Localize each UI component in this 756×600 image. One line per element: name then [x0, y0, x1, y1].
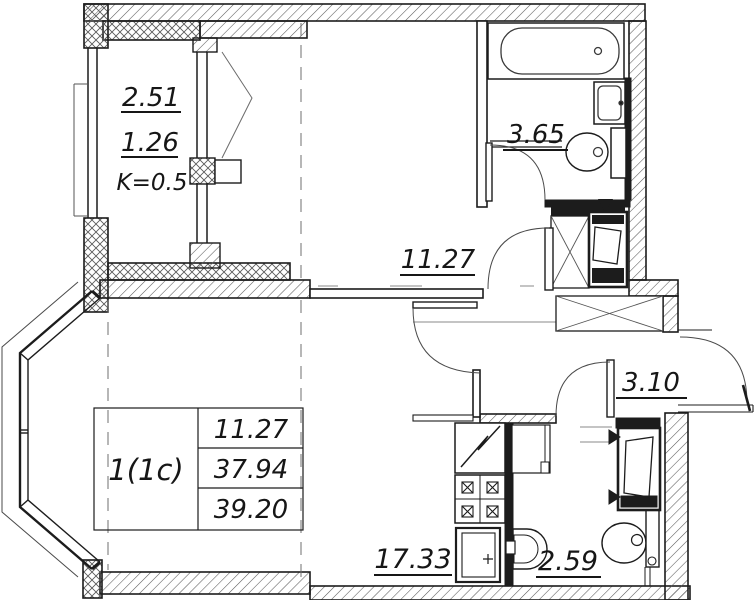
- bay-window: [2, 282, 100, 577]
- balcony-reduced-label: 1.26: [121, 128, 179, 158]
- wall-right-upper: [629, 21, 646, 280]
- door-entry-arc: [680, 337, 747, 403]
- wall-kitchen-corner: [473, 370, 480, 417]
- window-opening-indicator: [222, 52, 252, 158]
- toilet-tank: [611, 128, 626, 178]
- wall-kitchen-top: [480, 414, 556, 423]
- floor-plan-page: 2.51 1.26 K=0.5 11.27 3.65 3.10 17.33 2.…: [0, 0, 756, 600]
- wall-top: [84, 4, 645, 21]
- wall-bay-corner-block: [83, 560, 102, 598]
- wall-hall-top: [310, 289, 483, 298]
- wall-bathroom-bottom: [545, 200, 630, 207]
- door-living-arc: [413, 308, 480, 373]
- door-room-leaf: [545, 228, 553, 290]
- bay-window-outer: [20, 291, 92, 569]
- wall-top-inner-band: [200, 21, 307, 38]
- door-wc-arc: [556, 362, 610, 416]
- wall-room-divider: [100, 280, 310, 298]
- service-shaft: [551, 199, 627, 288]
- table-area: 37.94: [214, 455, 288, 485]
- wall-right-step-v: [663, 296, 678, 332]
- entry-duct-box: [556, 296, 663, 331]
- balcony-coefficient-label: K=0.5: [117, 170, 188, 196]
- hallway-area-label: 3.10: [622, 368, 680, 398]
- kitchen-counter-edge: [413, 415, 473, 421]
- door-room-arc: [488, 228, 549, 289]
- bathtub-drain: [595, 48, 602, 55]
- kitchen-area-label: 17.33: [374, 544, 451, 575]
- door-living-leaf: [413, 302, 477, 308]
- wall-top-insulation: [103, 21, 200, 40]
- door-bathroom-leaf: [486, 143, 492, 201]
- room-area-label: 11.27: [401, 245, 476, 275]
- wall-left-pillar-top: [84, 4, 108, 48]
- wall-bottom-right: [310, 586, 690, 600]
- bathroom-area-label: 3.65: [507, 120, 565, 150]
- wall-right-lower: [665, 413, 688, 600]
- floor-plan-drawing: 2.51 1.26 K=0.5 11.27 3.65 3.10 17.33 2.…: [0, 0, 756, 600]
- kitchen-fixtures: [455, 423, 505, 582]
- balcony-area-label: 2.51: [122, 83, 180, 113]
- door-bathroom-arc: [490, 145, 545, 200]
- table-living-area: 11.27: [214, 415, 289, 445]
- balcony-outer-window: [74, 48, 97, 218]
- wc-area-label: 2.59: [538, 546, 598, 577]
- wall-bottom-left: [100, 572, 310, 594]
- balcony-window: [197, 52, 252, 243]
- table-total-area: 39.20: [214, 495, 288, 525]
- door-wc-leaf: [607, 360, 614, 417]
- wc-basin-tap: [506, 541, 515, 554]
- apartment-type-label: 1(1c): [108, 453, 183, 487]
- wall-right-step-h: [629, 280, 678, 296]
- bathroom-fixtures: [488, 23, 626, 178]
